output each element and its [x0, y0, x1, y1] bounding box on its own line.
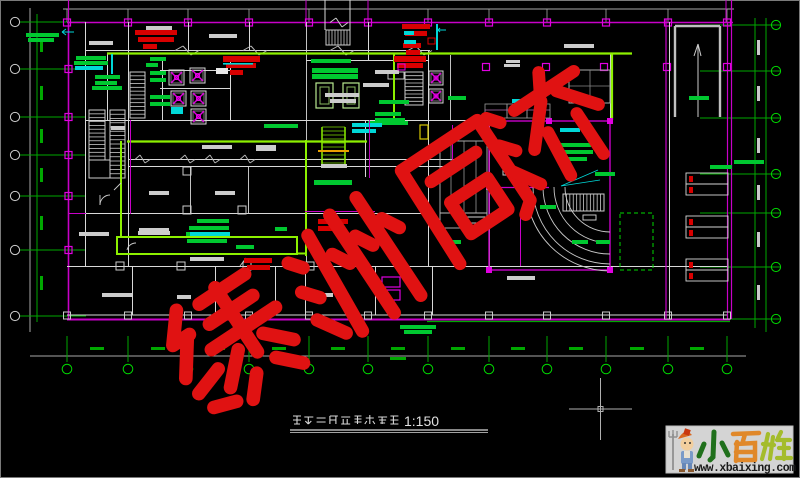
svg-text:1:150: 1:150	[404, 413, 439, 429]
svg-text:www.xbaixing.com: www.xbaixing.com	[694, 462, 796, 475]
